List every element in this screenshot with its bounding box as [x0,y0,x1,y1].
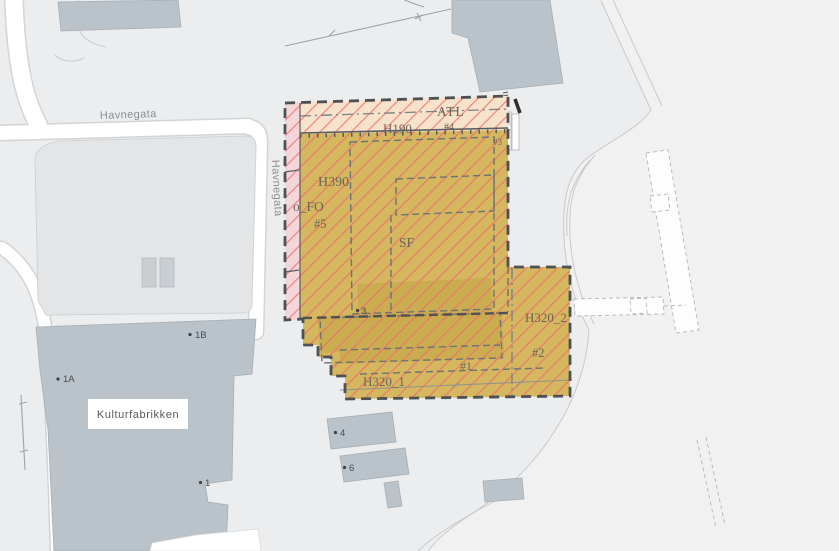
zone-label-fo: o_FO [293,199,324,214]
point-label-1b: 1B [195,330,207,341]
building-top-left [58,0,181,31]
zone-label-h390: H390 [318,175,349,190]
point-label-6: 6 [349,463,354,474]
point-label-4: 4 [340,428,345,439]
zone-label-h320-2: H320_2 [525,310,567,325]
zone-label-n1: #1 [460,359,472,373]
zone-label-h190: H190 [383,121,412,136]
walkway-horizontal [574,297,664,316]
zone-label-sf: SF [399,235,415,250]
map-canvas[interactable]: Havnegata Havnegata Kulturfabrikken ATL … [0,0,839,551]
zone-label-n2: #2 [532,346,545,360]
building-kulturfabrikken [36,319,256,551]
street-label-havnegata-horizontal: Havnegata [100,108,158,122]
building-bottom-right [483,478,524,502]
zone-label-n5: #5 [314,217,327,231]
pier-square [650,194,670,212]
place-label-kulturfabrikken: Kulturfabrikken [97,409,179,421]
point-label-1: 1 [205,478,210,489]
parking-stall [160,258,174,287]
parking-area [35,136,256,315]
building-small-4 [327,412,396,449]
zone-label-atl: ATL [437,104,465,119]
point-label-3: 3 [361,306,366,317]
zoning-map: Havnegata Havnegata Kulturfabrikken ATL … [0,0,839,551]
zone-label-n3: #3 [493,137,503,147]
parking-stall [142,258,156,287]
zone-label-n4: #4 [444,122,454,133]
zone-label-h320-1: H320_1 [363,374,405,389]
point-label-1a: 1A [63,374,75,385]
